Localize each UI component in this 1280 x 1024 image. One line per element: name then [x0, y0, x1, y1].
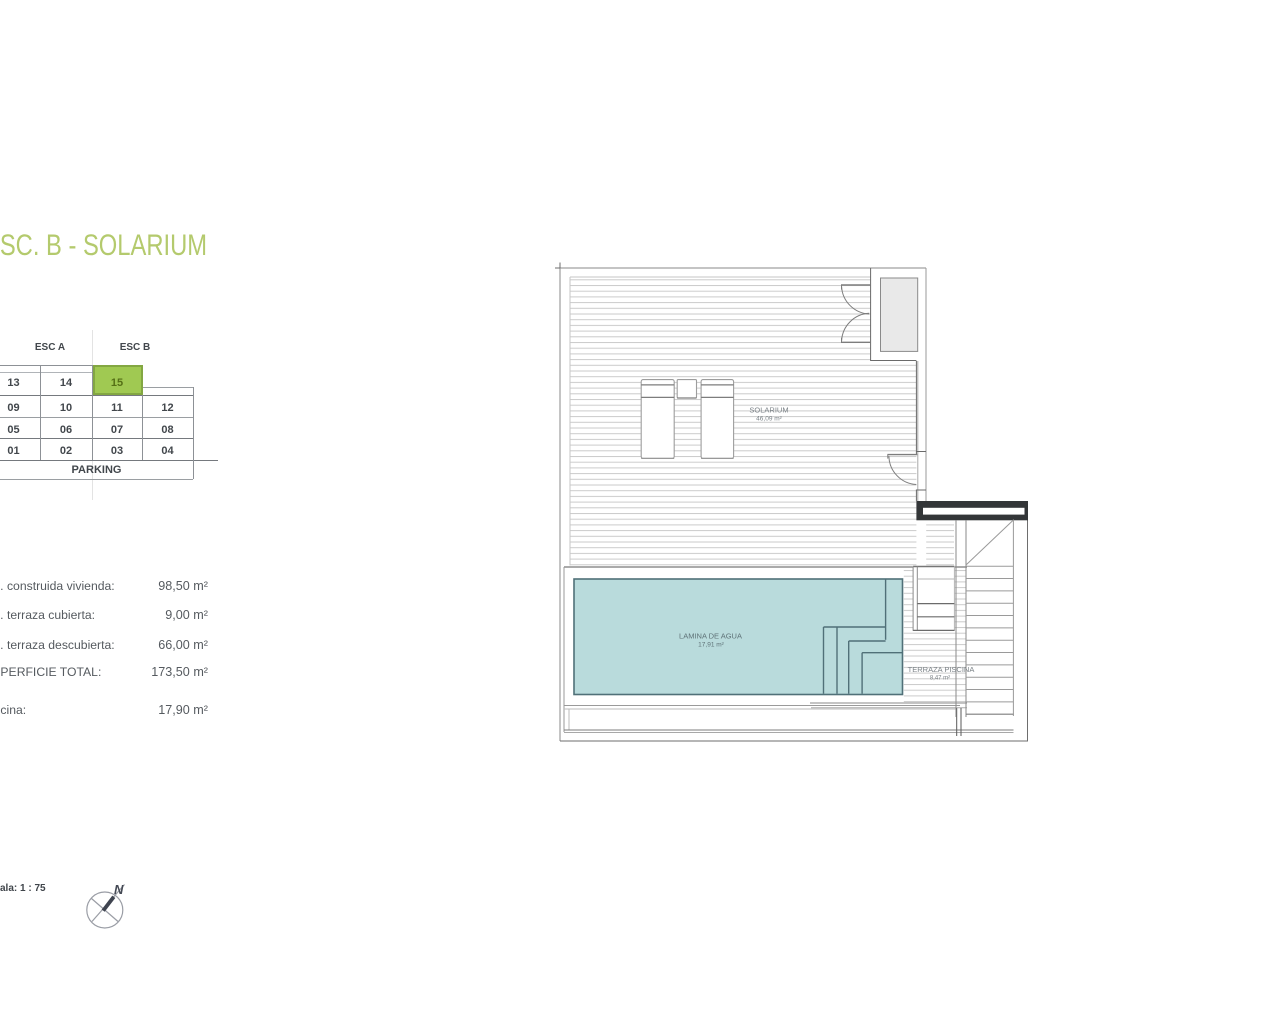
- svg-text:8,47 m²: 8,47 m²: [930, 675, 950, 681]
- svg-text:LAMINA DE AGUA: LAMINA DE AGUA: [679, 631, 742, 640]
- svg-text:N: N: [114, 882, 124, 897]
- svg-text:17,91 m²: 17,91 m²: [698, 641, 724, 648]
- svg-text:SOLARIUM: SOLARIUM: [749, 405, 788, 414]
- svg-text:46,09 m²: 46,09 m²: [756, 416, 782, 423]
- svg-text:TERRAZA PISCINA: TERRAZA PISCINA: [908, 665, 975, 674]
